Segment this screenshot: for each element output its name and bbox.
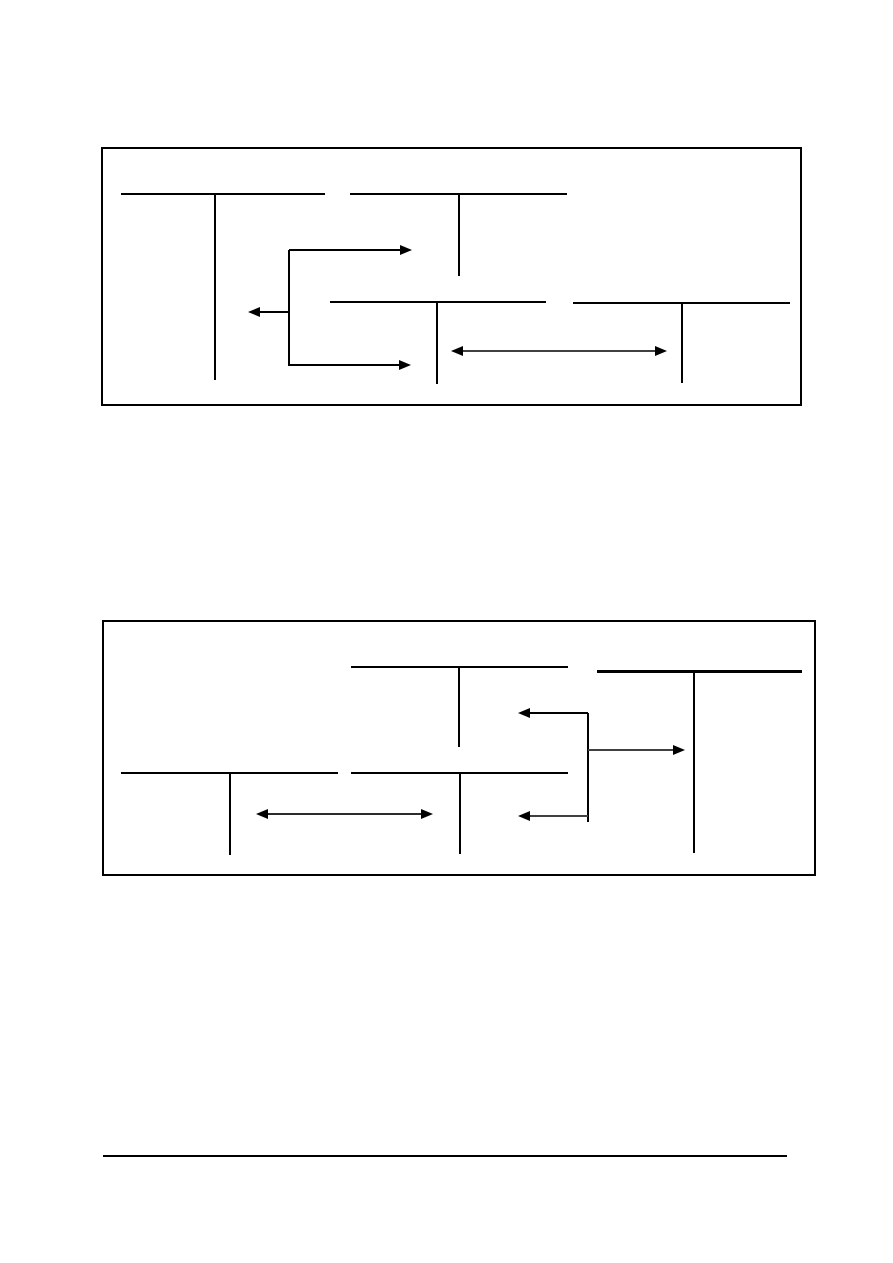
arrow-upper-left-head-left-icon	[518, 708, 530, 718]
branch-connector	[288, 250, 290, 366]
arrow-right-shaft	[588, 749, 675, 752]
t-account-flow-diagram-top	[101, 147, 802, 406]
double-arrow-shaft	[266, 813, 423, 815]
double-arrow-head-left-icon	[451, 346, 463, 356]
double-arrow-head-left-icon	[256, 809, 268, 819]
arrow-lower-left-head-left-icon	[518, 811, 530, 821]
arrow-left-head-left-icon	[248, 307, 260, 317]
arrow-upper-right-head-right-icon	[400, 245, 412, 255]
account-bottom-middle-stem	[436, 302, 438, 384]
account-top-middle-stem	[458, 667, 460, 747]
account-bottom-left-stem	[229, 773, 231, 855]
arrow-lower-right-shaft	[289, 364, 401, 366]
account-top-right-bar	[597, 670, 802, 673]
account-top-right-stem	[693, 671, 695, 853]
double-arrow-head-right-icon	[421, 809, 433, 819]
document-page	[0, 0, 893, 1263]
account-bottom-middle-stem	[459, 773, 461, 854]
account-top-middle-stem	[458, 194, 460, 276]
arrow-lower-left-shaft	[528, 815, 588, 818]
arrow-upper-right-shaft	[289, 249, 402, 251]
arrow-right-head-right-icon	[673, 745, 685, 755]
footer-rule	[103, 1155, 787, 1157]
arrow-left-shaft	[258, 311, 289, 313]
arrow-upper-left-shaft	[528, 712, 588, 714]
arrow-lower-right-head-right-icon	[399, 360, 411, 370]
double-arrow-head-right-icon	[655, 346, 667, 356]
account-bottom-middle-bar	[330, 301, 546, 303]
account-bottom-right-stem	[681, 303, 683, 383]
account-top-left-stem	[214, 194, 216, 380]
account-top-left-bar	[121, 193, 325, 195]
double-arrow-shaft	[461, 350, 657, 353]
branch-connector	[587, 713, 589, 822]
t-account-flow-diagram-bottom	[102, 620, 816, 876]
